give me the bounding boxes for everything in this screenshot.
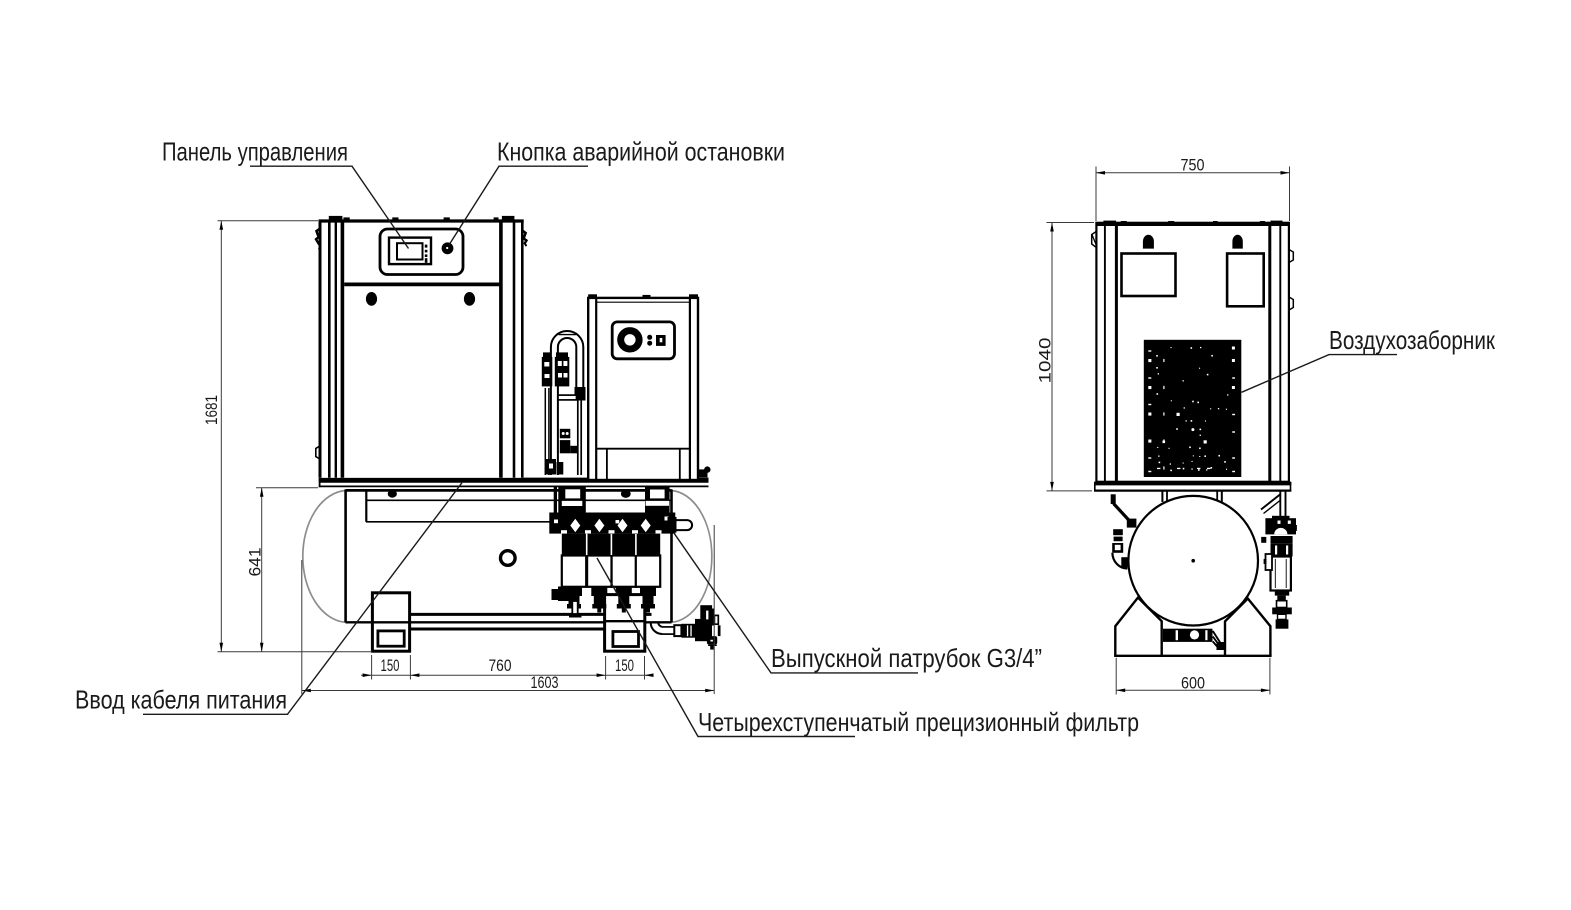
svg-text:1681: 1681 (202, 395, 221, 425)
svg-text:150: 150 (615, 656, 634, 675)
svg-text:1603: 1603 (531, 673, 559, 692)
svg-text:Ввод кабеля питания: Ввод кабеля питания (75, 685, 287, 715)
svg-text:600: 600 (1181, 674, 1205, 693)
svg-text:641: 641 (246, 548, 265, 577)
svg-text:760: 760 (489, 656, 512, 675)
svg-text:Выпускной патрубок G3/4”: Выпускной патрубок G3/4” (771, 643, 1042, 673)
svg-text:1040: 1040 (1036, 338, 1055, 384)
svg-text:Воздухозаборник: Воздухозаборник (1329, 325, 1495, 355)
svg-text:Четырехступенчатый прецизионны: Четырехступенчатый прецизионный фильтр (698, 707, 1139, 737)
svg-text:Панель управления: Панель управления (162, 137, 348, 167)
svg-text:750: 750 (1181, 156, 1205, 175)
svg-text:Кнопка аварийной остановки: Кнопка аварийной остановки (497, 137, 785, 167)
svg-text:150: 150 (381, 656, 400, 675)
